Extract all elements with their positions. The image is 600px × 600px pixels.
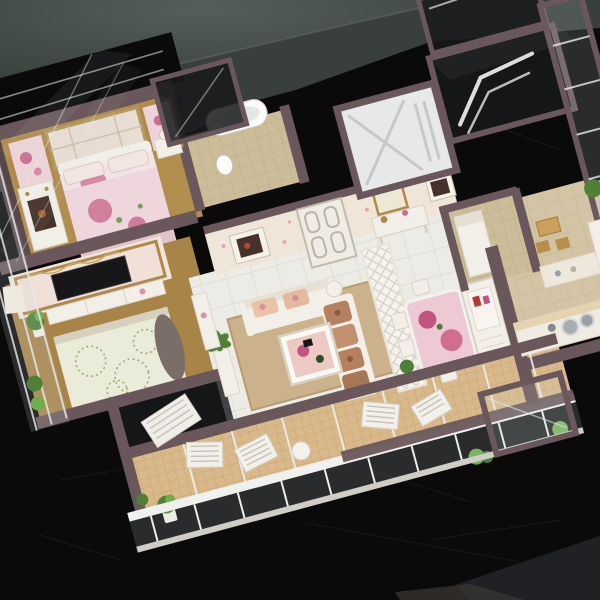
photo-of-apartment-scale-model — [0, 0, 600, 600]
scene-canvas — [0, 0, 600, 600]
white-chair — [2, 285, 25, 314]
